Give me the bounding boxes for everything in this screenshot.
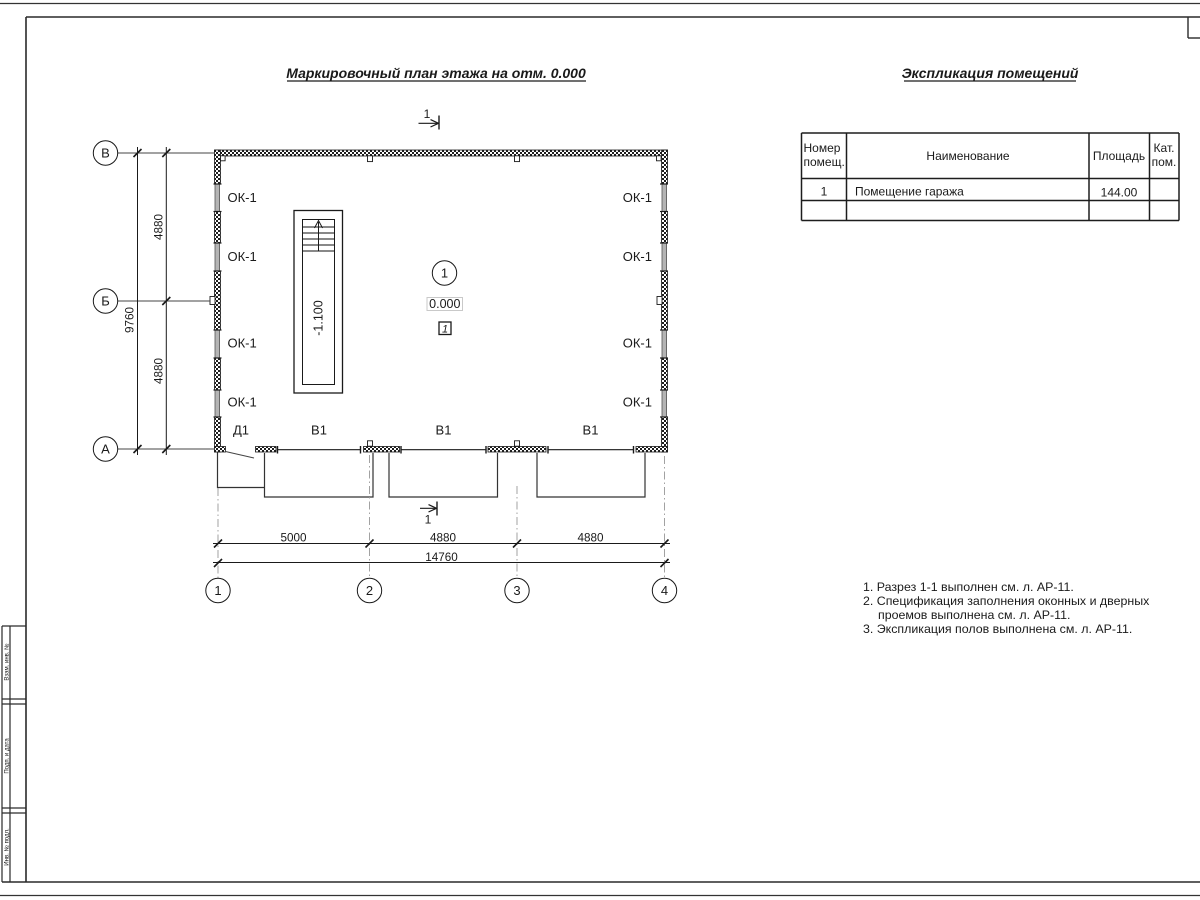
svg-text:Б: Б bbox=[101, 294, 110, 309]
svg-text:1: 1 bbox=[821, 185, 828, 199]
svg-text:3: 3 bbox=[513, 583, 520, 598]
svg-text:4880: 4880 bbox=[577, 532, 604, 545]
svg-text:1: 1 bbox=[441, 266, 448, 281]
svg-text:В1: В1 bbox=[583, 423, 599, 438]
svg-text:-1.100: -1.100 bbox=[312, 300, 326, 335]
svg-text:1: 1 bbox=[425, 513, 432, 527]
svg-text:Взам. инв. №: Взам. инв. № bbox=[4, 643, 11, 680]
svg-text:1: 1 bbox=[214, 583, 221, 598]
svg-text:В: В bbox=[101, 146, 110, 161]
svg-text:В1: В1 bbox=[436, 423, 452, 438]
svg-text:4880: 4880 bbox=[430, 532, 457, 545]
svg-text:ОК-1: ОК-1 bbox=[228, 335, 257, 350]
svg-text:помещ.: помещ. bbox=[804, 155, 845, 169]
svg-text:ОК-1: ОК-1 bbox=[623, 394, 652, 409]
svg-text:Маркировочный план этажа на от: Маркировочный план этажа на отм. 0.000 bbox=[286, 65, 586, 81]
svg-text:Помещение гаража: Помещение гаража bbox=[855, 185, 964, 199]
svg-text:Экспликация помещений: Экспликация помещений bbox=[902, 65, 1079, 81]
svg-text:Инв. № подл.: Инв. № подл. bbox=[4, 828, 11, 866]
svg-text:В1: В1 bbox=[311, 423, 327, 438]
svg-text:9760: 9760 bbox=[124, 307, 137, 334]
svg-text:пом.: пом. bbox=[1152, 155, 1177, 169]
svg-text:ОК-1: ОК-1 bbox=[228, 394, 257, 409]
svg-text:Площадь: Площадь bbox=[1093, 149, 1145, 163]
svg-text:14760: 14760 bbox=[425, 551, 458, 564]
svg-text:А: А bbox=[101, 442, 110, 457]
svg-text:Номер: Номер bbox=[804, 141, 841, 155]
svg-text:2: 2 bbox=[366, 583, 373, 598]
svg-text:144.00: 144.00 bbox=[1101, 186, 1138, 200]
svg-text:Кат.: Кат. bbox=[1154, 141, 1175, 155]
svg-text:ОК-1: ОК-1 bbox=[623, 335, 652, 350]
svg-text:5000: 5000 bbox=[280, 532, 307, 545]
svg-text:4880: 4880 bbox=[153, 358, 166, 385]
svg-text:4880: 4880 bbox=[153, 214, 166, 241]
svg-text:ОК-1: ОК-1 bbox=[623, 190, 652, 205]
svg-text:2. Спецификация заполнения око: 2. Спецификация заполнения оконных и две… bbox=[863, 594, 1150, 608]
svg-text:1. Разрез 1-1 выполнен см. л.: 1. Разрез 1-1 выполнен см. л. АР-11. bbox=[863, 580, 1074, 594]
svg-text:0.000: 0.000 bbox=[429, 297, 460, 311]
svg-text:3. Экспликация полов выполнена: 3. Экспликация полов выполнена см. л. АР… bbox=[863, 622, 1132, 636]
svg-text:Наименование: Наименование bbox=[926, 149, 1010, 163]
svg-text:4: 4 bbox=[661, 583, 668, 598]
svg-text:ОК-1: ОК-1 bbox=[623, 249, 652, 264]
svg-text:ОК-1: ОК-1 bbox=[228, 249, 257, 264]
svg-text:ОК-1: ОК-1 bbox=[228, 190, 257, 205]
svg-text:Подп. и дата: Подп. и дата bbox=[5, 738, 11, 774]
svg-text:1: 1 bbox=[442, 323, 448, 335]
svg-text:1: 1 bbox=[424, 107, 431, 121]
svg-text:проемов выполнена см. л. АР-11: проемов выполнена см. л. АР-11. bbox=[878, 608, 1070, 622]
svg-text:Д1: Д1 bbox=[233, 423, 249, 438]
